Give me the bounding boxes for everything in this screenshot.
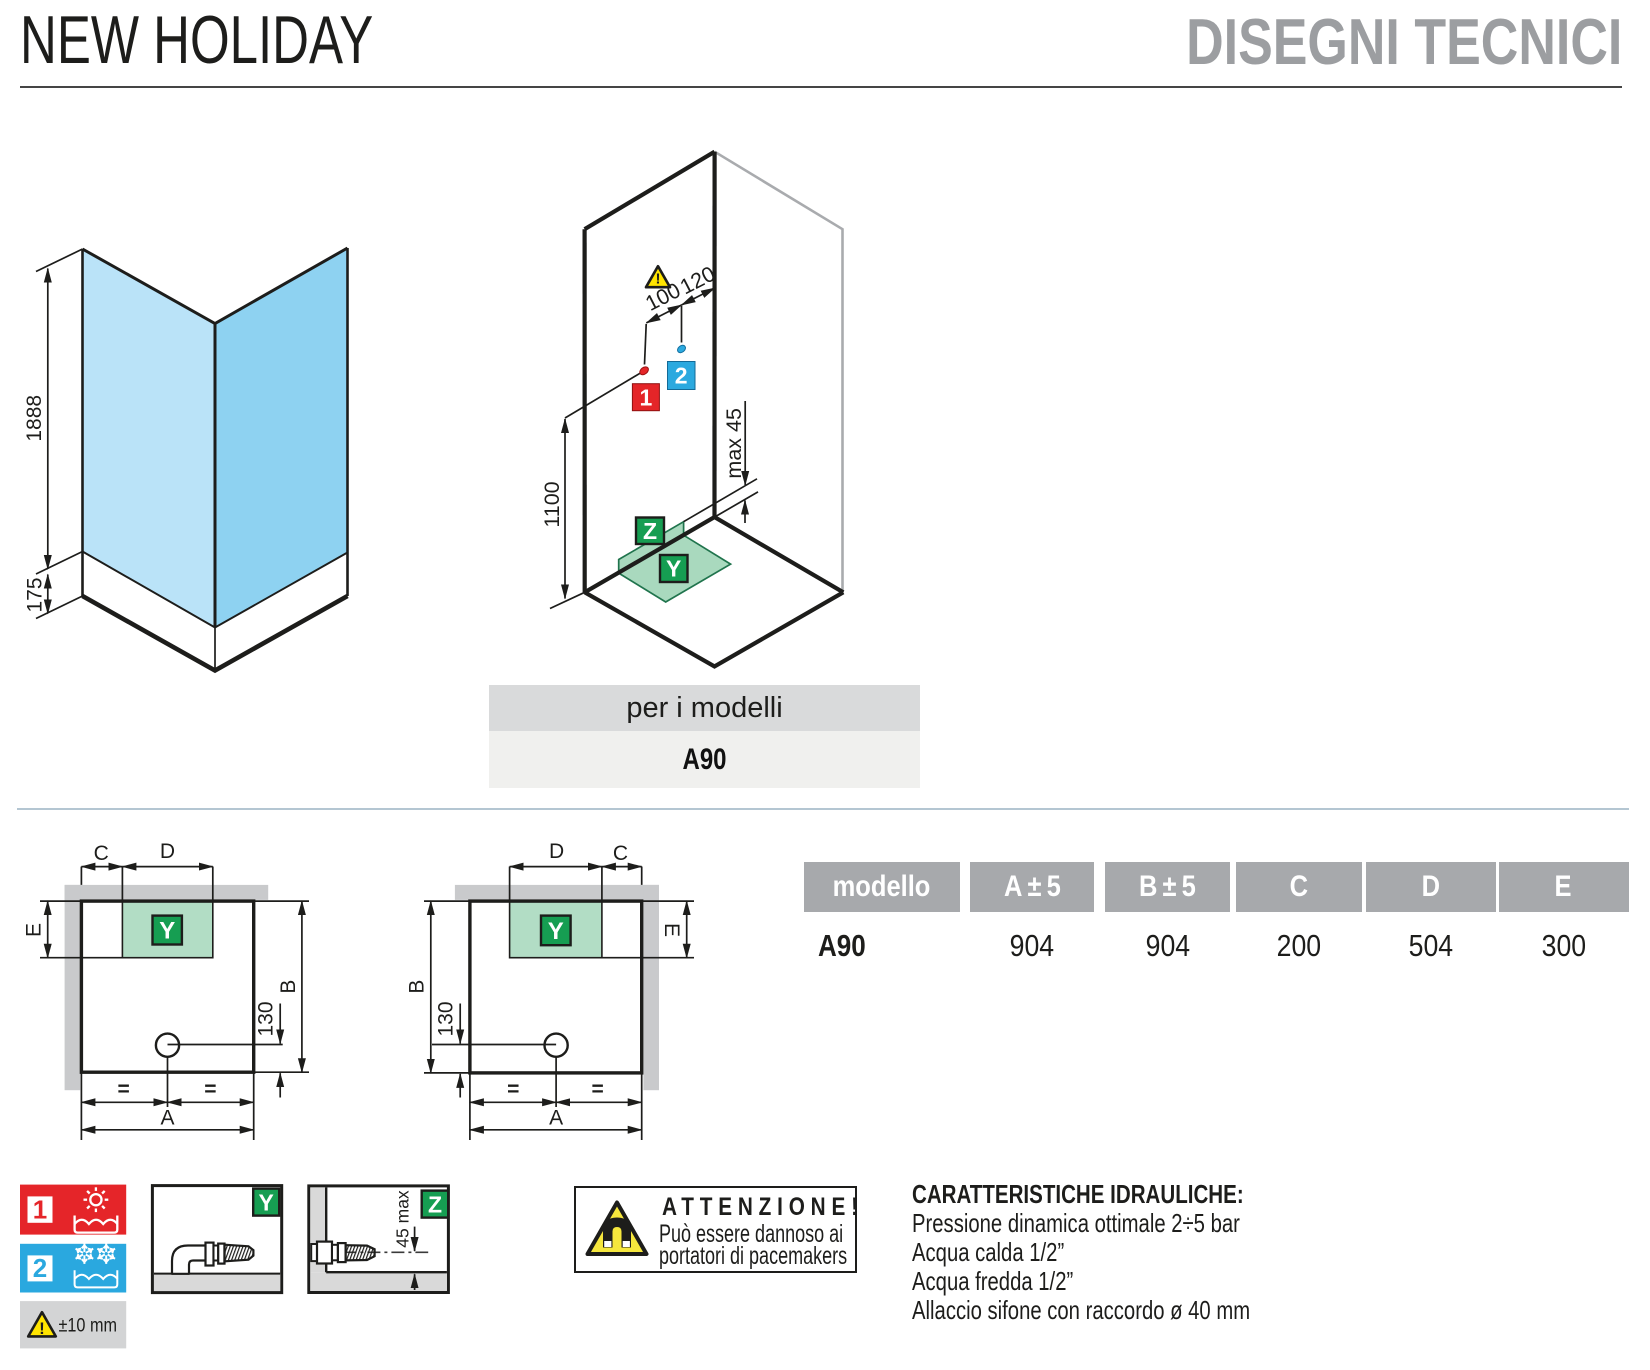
svg-text:C: C bbox=[613, 842, 628, 865]
svg-text:D: D bbox=[160, 840, 175, 863]
svg-text:Y: Y bbox=[259, 1190, 274, 1216]
svg-text:C: C bbox=[94, 842, 109, 865]
svg-text:B: B bbox=[277, 980, 300, 994]
svg-text:45 max: 45 max bbox=[393, 1190, 413, 1248]
svg-text:E: E bbox=[660, 923, 683, 937]
svg-text:A: A bbox=[549, 1107, 563, 1130]
svg-text:Z: Z bbox=[428, 1192, 442, 1218]
svg-text:A: A bbox=[160, 1107, 174, 1130]
svg-text:130: 130 bbox=[435, 1001, 458, 1036]
svg-text:D: D bbox=[549, 840, 564, 863]
svg-text:130: 130 bbox=[255, 1001, 278, 1036]
svg-text:B: B bbox=[406, 980, 429, 994]
svg-text:=: = bbox=[204, 1078, 216, 1101]
svg-text:=: = bbox=[507, 1078, 519, 1101]
svg-text:=: = bbox=[117, 1078, 129, 1101]
svg-text:Y: Y bbox=[666, 556, 681, 582]
svg-text:Z: Z bbox=[643, 518, 657, 544]
svg-text:!: ! bbox=[39, 1319, 45, 1338]
svg-text:Y: Y bbox=[548, 918, 564, 945]
svg-text:2: 2 bbox=[675, 363, 688, 389]
svg-text:Y: Y bbox=[159, 918, 175, 945]
svg-text:max 45: max 45 bbox=[722, 408, 746, 479]
svg-text:2: 2 bbox=[33, 1253, 47, 1283]
svg-text:!: ! bbox=[656, 271, 661, 288]
svg-text:175: 175 bbox=[23, 577, 46, 612]
svg-text:±10 mm: ±10 mm bbox=[59, 1315, 118, 1337]
svg-text:1888: 1888 bbox=[23, 395, 46, 442]
svg-text:1: 1 bbox=[640, 385, 653, 411]
svg-text:1: 1 bbox=[33, 1195, 47, 1225]
svg-text:=: = bbox=[591, 1078, 603, 1101]
svg-text:E: E bbox=[22, 923, 45, 937]
svg-text:1100: 1100 bbox=[540, 481, 564, 527]
